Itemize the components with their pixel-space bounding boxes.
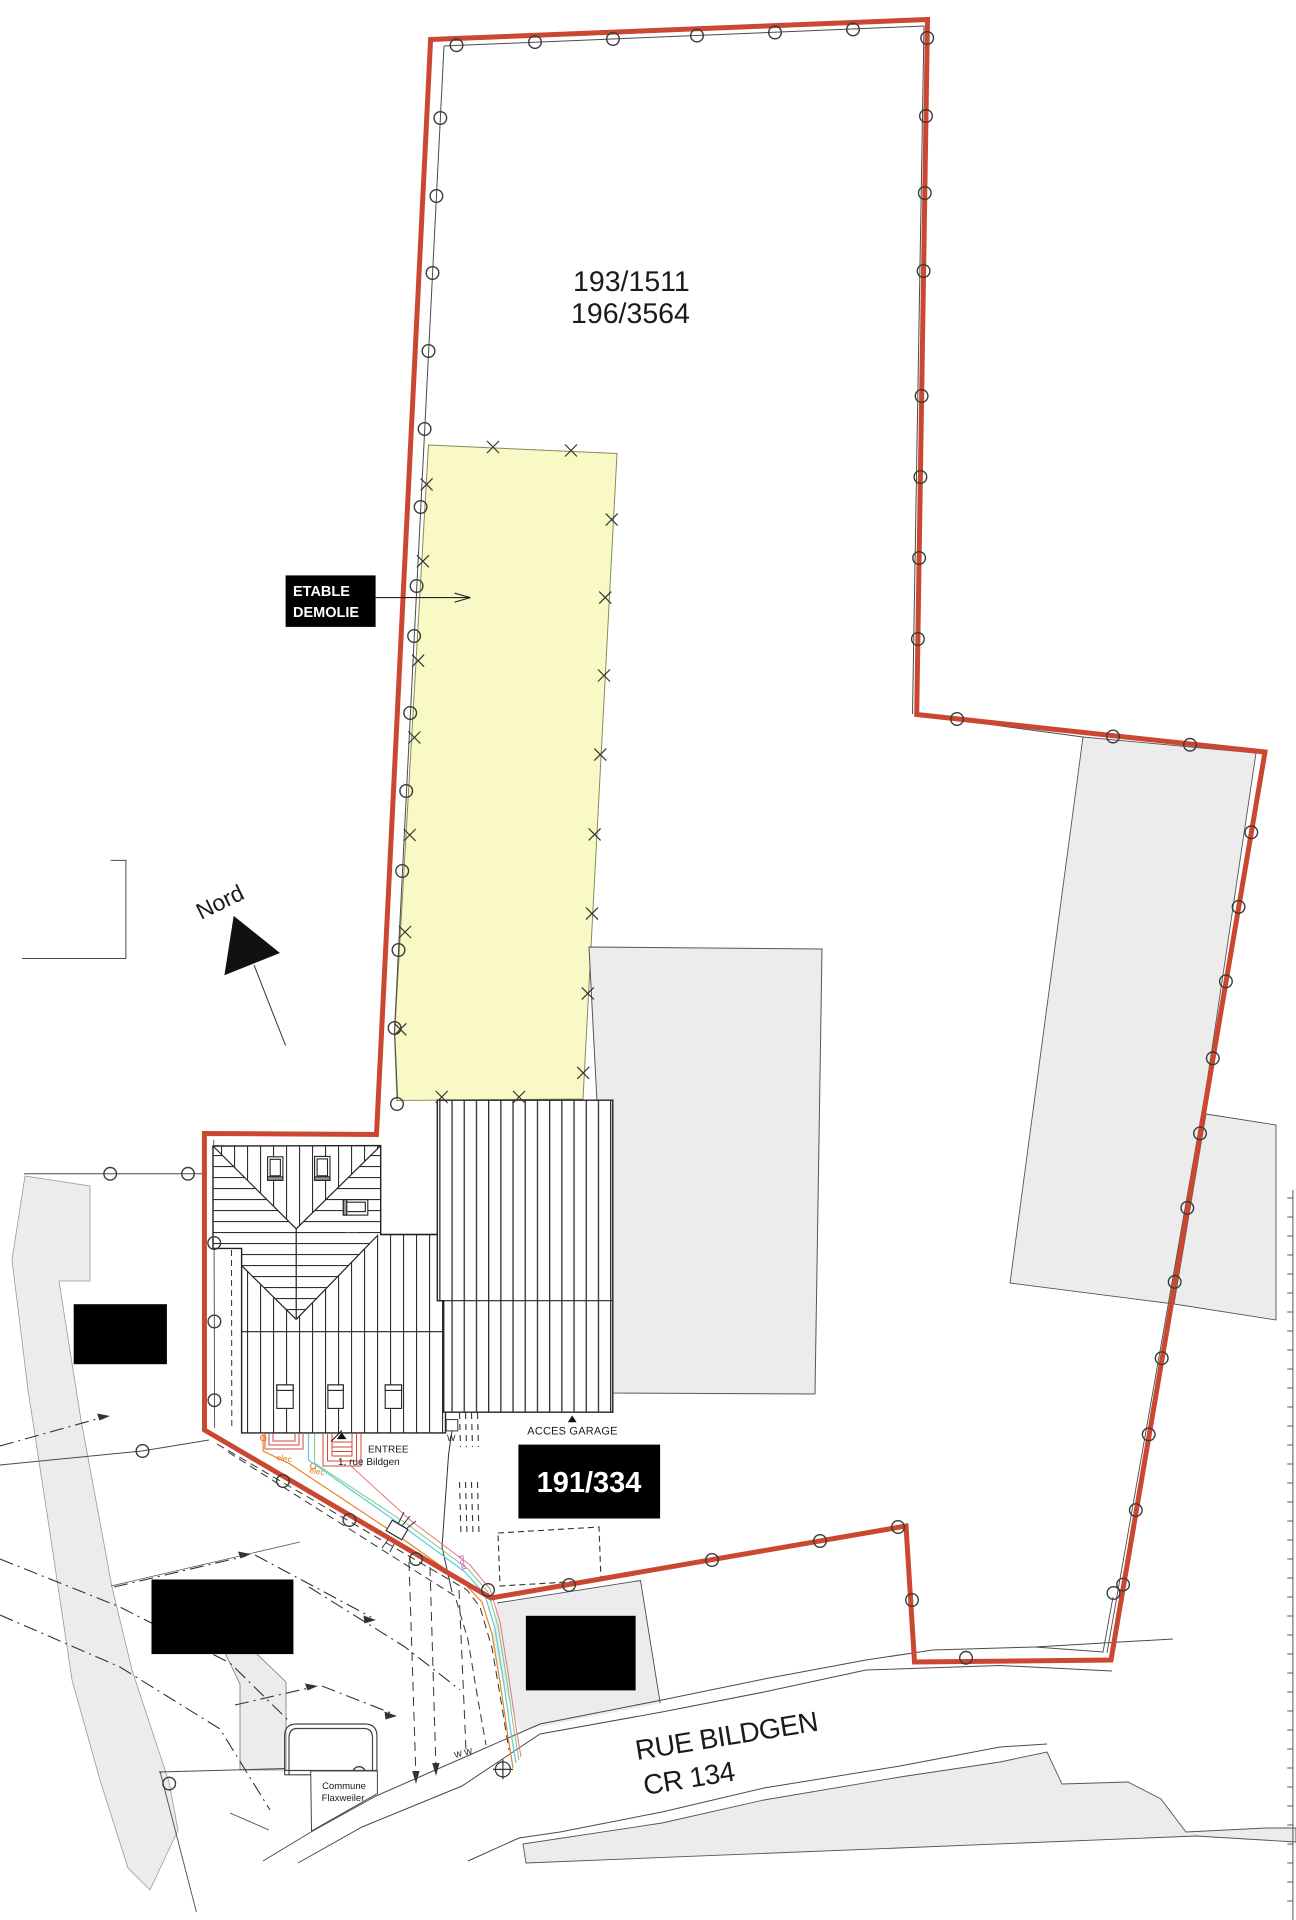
svg-text:1, rue Bildgen: 1, rue Bildgen	[338, 1457, 400, 1468]
svg-text:ETABLE: ETABLE	[293, 584, 350, 600]
svg-text:Commune: Commune	[322, 1781, 366, 1792]
svg-text:Flaxweiler: Flaxweiler	[322, 1793, 365, 1804]
svg-text:ENTREE: ENTREE	[368, 1445, 409, 1456]
svg-text:191/334: 191/334	[537, 1467, 642, 1499]
svg-text:196/3564: 196/3564	[571, 298, 690, 330]
svg-text:W: W	[447, 1433, 456, 1443]
svg-text:193/1511: 193/1511	[573, 266, 690, 298]
svg-text:ACCES GARAGE: ACCES GARAGE	[527, 1426, 617, 1438]
svg-text:DEMOLIE: DEMOLIE	[293, 605, 359, 621]
